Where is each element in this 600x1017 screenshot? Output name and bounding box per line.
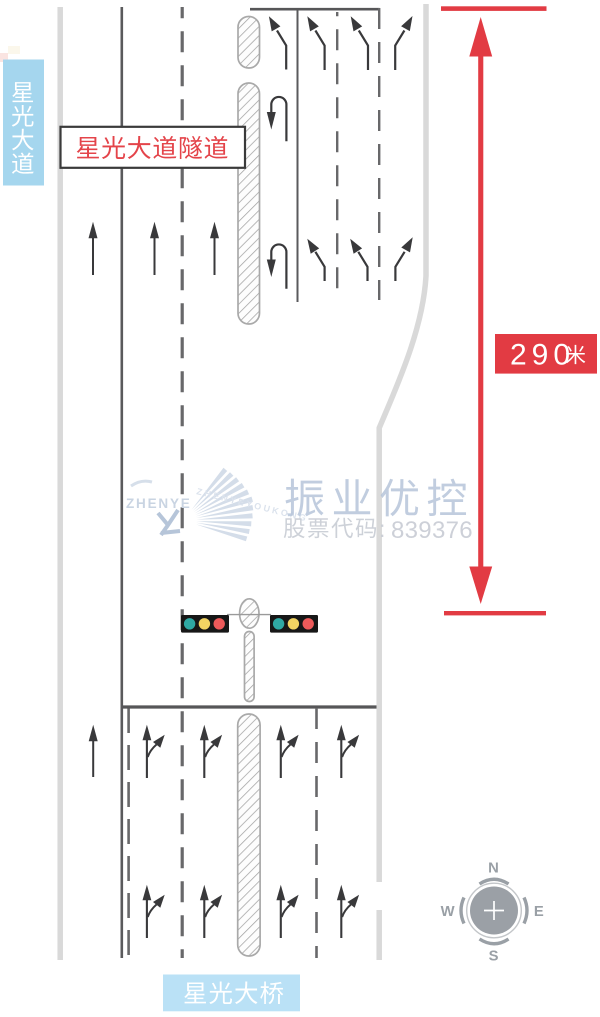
svg-text:290: 290 [510, 339, 575, 372]
svg-text::: : [379, 516, 385, 542]
svg-text:839376: 839376 [391, 517, 473, 544]
svg-text:W: W [441, 904, 455, 920]
svg-text:S: S [489, 949, 499, 965]
svg-text:ZHENYE: ZHENYE [126, 496, 192, 511]
svg-text:N: N [488, 861, 499, 877]
svg-text:E: E [534, 904, 544, 920]
